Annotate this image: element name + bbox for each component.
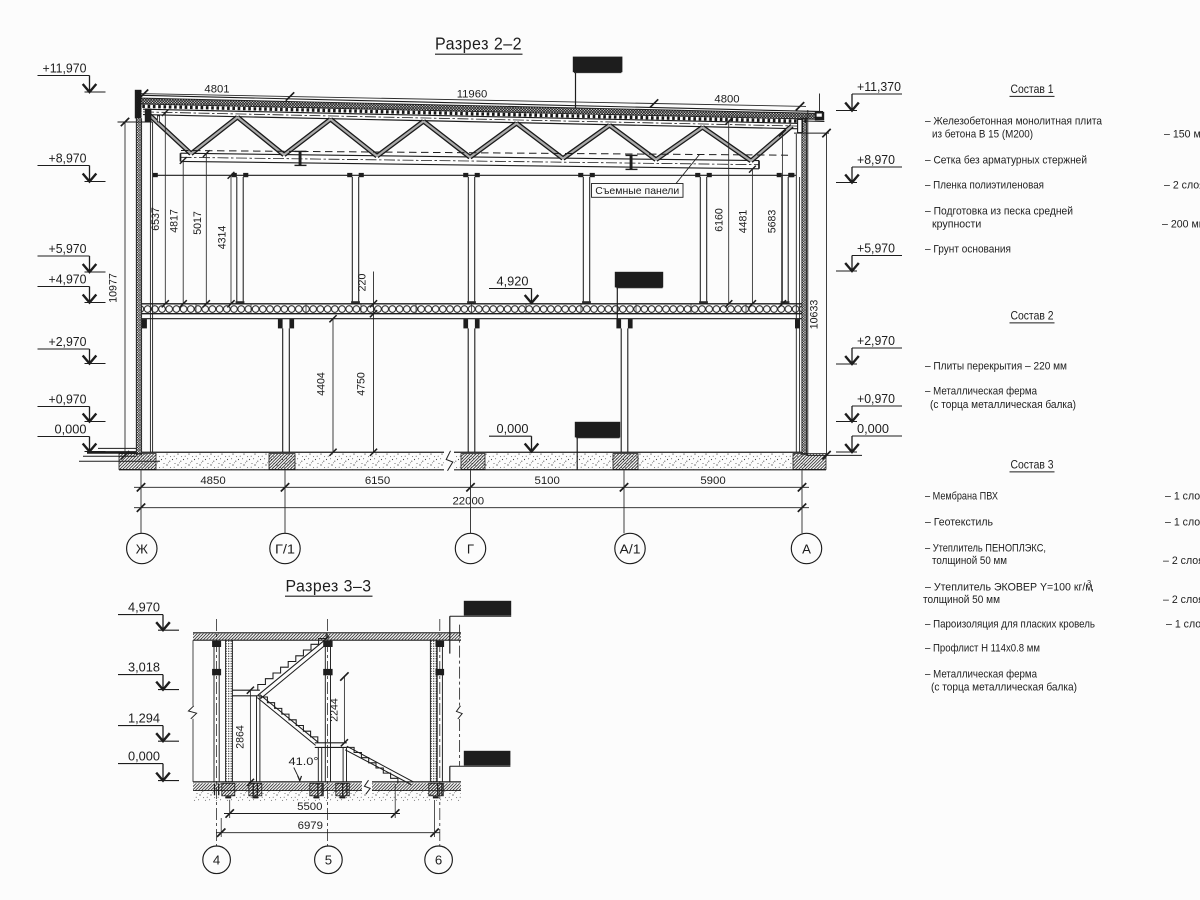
svg-text:+2,970: +2,970 xyxy=(49,334,87,349)
svg-text:5500: 5500 xyxy=(297,801,322,813)
svg-text:– Пароизоляция для пласких кро: – Пароизоляция для пласких кровель xyxy=(925,619,1095,631)
svg-text:– 1 слой: – 1 слой xyxy=(1165,517,1200,529)
svg-text:(с торца металлическая балка): (с торца металлическая балка) xyxy=(930,399,1076,411)
svg-text:– 150 мм: – 150 мм xyxy=(1164,129,1200,141)
svg-text:– 1 слой: – 1 слой xyxy=(1166,619,1200,631)
svg-text:0,000: 0,000 xyxy=(497,421,529,436)
svg-text:6150: 6150 xyxy=(365,475,390,487)
svg-text:– 2 слоя: – 2 слоя xyxy=(1164,180,1200,192)
svg-text:4,970: 4,970 xyxy=(128,600,160,615)
svg-text:+0,970: +0,970 xyxy=(857,391,895,406)
svg-text:4,920: 4,920 xyxy=(497,274,529,289)
svg-text:+11,370: +11,370 xyxy=(857,79,901,94)
svg-text:4481: 4481 xyxy=(737,210,749,234)
svg-text:– Пленка полиэтиленовая: – Пленка полиэтиленовая xyxy=(925,180,1044,192)
svg-text:+2,970: +2,970 xyxy=(857,333,895,348)
svg-text:А/1: А/1 xyxy=(620,541,641,556)
svg-text:толщиной 50 мм: толщиной 50 мм xyxy=(932,555,1007,567)
svg-text:Г: Г xyxy=(467,541,474,556)
svg-text:10633: 10633 xyxy=(809,300,821,330)
svg-text:2864: 2864 xyxy=(235,725,247,749)
svg-text:4817: 4817 xyxy=(169,209,181,233)
svg-text:5900: 5900 xyxy=(700,475,725,487)
svg-text:4314: 4314 xyxy=(217,226,229,250)
svg-text:Съемные панели: Съемные панели xyxy=(595,186,679,197)
svg-text:– 1 слой: – 1 слой xyxy=(1165,491,1200,503)
svg-text:5: 5 xyxy=(325,852,332,867)
svg-text:+0,970: +0,970 xyxy=(49,392,87,407)
svg-text:0,000: 0,000 xyxy=(857,421,889,436)
svg-text:,: , xyxy=(1091,582,1094,594)
svg-text:– Утеплитель ЭКОВЕР Y=100 кг/м: – Утеплитель ЭКОВЕР Y=100 кг/м xyxy=(925,582,1093,594)
svg-text:(с торца металлическая балка): (с торца металлическая балка) xyxy=(931,682,1077,694)
svg-text:Состав 2: Состав 2 xyxy=(1011,309,1054,323)
svg-text:4850: 4850 xyxy=(200,475,225,487)
svg-text:– Металлическая ферма: – Металлическая ферма xyxy=(925,669,1037,681)
svg-text:6: 6 xyxy=(435,852,442,867)
svg-text:Состав 1: Состав 1 xyxy=(1011,82,1054,96)
svg-text:Г/1: Г/1 xyxy=(275,541,295,556)
svg-text:– Подготовка из песка средней: – Подготовка из песка средней xyxy=(925,206,1073,218)
svg-text:6160: 6160 xyxy=(713,208,725,232)
svg-text:из бетона В 15 (М200): из бетона В 15 (М200) xyxy=(932,129,1033,141)
svg-text:+8,970: +8,970 xyxy=(49,151,87,166)
svg-text:4: 4 xyxy=(213,852,220,867)
svg-text:5017: 5017 xyxy=(192,211,204,235)
svg-text:Состав 3: Состав 3 xyxy=(1011,458,1054,472)
svg-text:Разрез 3–3: Разрез 3–3 xyxy=(286,578,372,596)
svg-text:– Мембрана ПВХ: – Мембрана ПВХ xyxy=(925,491,998,503)
svg-text:2244: 2244 xyxy=(328,698,340,722)
svg-text:22000: 22000 xyxy=(452,495,484,507)
svg-text:Ж: Ж xyxy=(136,541,148,556)
svg-text:А: А xyxy=(802,541,811,556)
svg-text:4800: 4800 xyxy=(714,93,739,105)
svg-text:– Грунт основания: – Грунт основания xyxy=(925,244,1011,256)
svg-text:4404: 4404 xyxy=(315,372,327,396)
svg-text:– Профлист Н 114х0.8 мм: – Профлист Н 114х0.8 мм xyxy=(925,643,1040,655)
svg-text:41.0°: 41.0° xyxy=(289,756,319,768)
svg-text:– Металлическая ферма: – Металлическая ферма xyxy=(925,386,1037,398)
svg-text:– 2 слоя: – 2 слоя xyxy=(1163,594,1200,606)
svg-text:крупности: крупности xyxy=(932,219,981,231)
svg-text:– Утеплитель ПЕНОПЛЭКС,: – Утеплитель ПЕНОПЛЭКС, xyxy=(925,543,1046,555)
svg-text:Разрез 2–2: Разрез 2–2 xyxy=(435,34,522,54)
svg-text:– Сетка без арматурных стержне: – Сетка без арматурных стержней xyxy=(925,155,1087,167)
svg-text:6979: 6979 xyxy=(298,820,323,832)
svg-text:3,018: 3,018 xyxy=(128,660,160,675)
svg-text:4801: 4801 xyxy=(204,84,229,96)
svg-text:толщиной 50 мм: толщиной 50 мм xyxy=(923,594,1000,606)
svg-text:6537: 6537 xyxy=(150,207,162,231)
svg-text:– 2 слоя: – 2 слоя xyxy=(1163,555,1200,567)
svg-text:– Железобетонная монолитная п: – Железобетонная монолитная плита xyxy=(925,116,1102,128)
svg-text:– Геотекстиль: – Геотекстиль xyxy=(925,517,993,529)
svg-text:+4,970: +4,970 xyxy=(49,272,87,287)
svg-text:+8,970: +8,970 xyxy=(857,152,895,167)
svg-text:5683: 5683 xyxy=(767,210,779,234)
svg-text:0,000: 0,000 xyxy=(55,422,87,437)
svg-text:– 200 мм: – 200 мм xyxy=(1162,219,1200,231)
svg-text:– Плиты перекрытия – 220 мм: – Плиты перекрытия – 220 мм xyxy=(925,361,1067,373)
svg-text:11960: 11960 xyxy=(457,88,488,100)
svg-text:1,294: 1,294 xyxy=(128,711,160,726)
svg-text:220: 220 xyxy=(357,274,369,292)
svg-text:+5,970: +5,970 xyxy=(857,241,895,256)
svg-text:+11,970: +11,970 xyxy=(43,61,87,76)
svg-text:10977: 10977 xyxy=(108,273,120,303)
svg-text:5100: 5100 xyxy=(535,475,560,487)
svg-text:4750: 4750 xyxy=(355,372,367,396)
svg-text:0,000: 0,000 xyxy=(128,749,160,764)
svg-text:+5,970: +5,970 xyxy=(49,241,87,256)
